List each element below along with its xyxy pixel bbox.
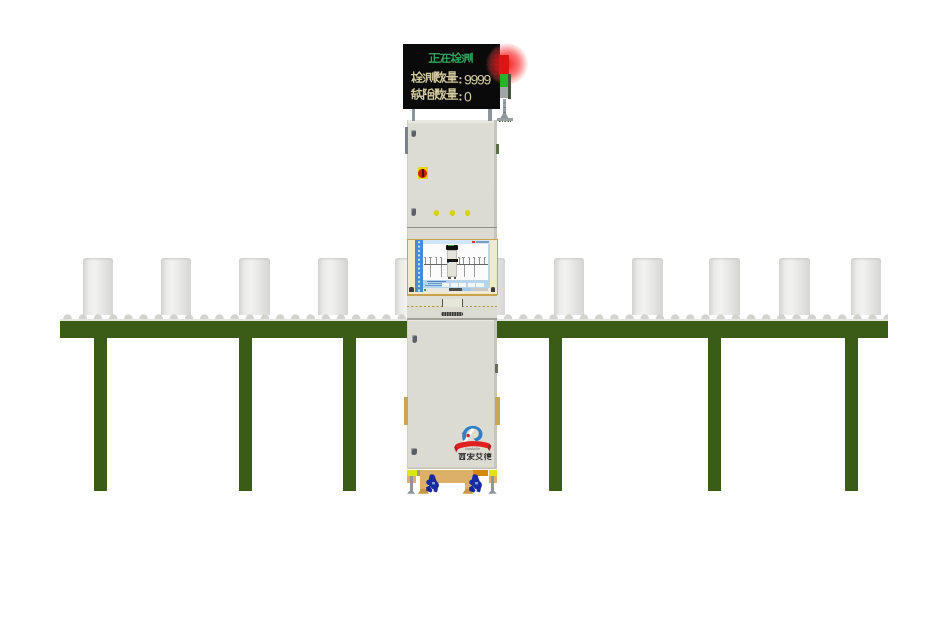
svg-text:0: 0	[464, 88, 472, 104]
svg-text:XianAoDe: XianAoDe	[465, 447, 480, 451]
